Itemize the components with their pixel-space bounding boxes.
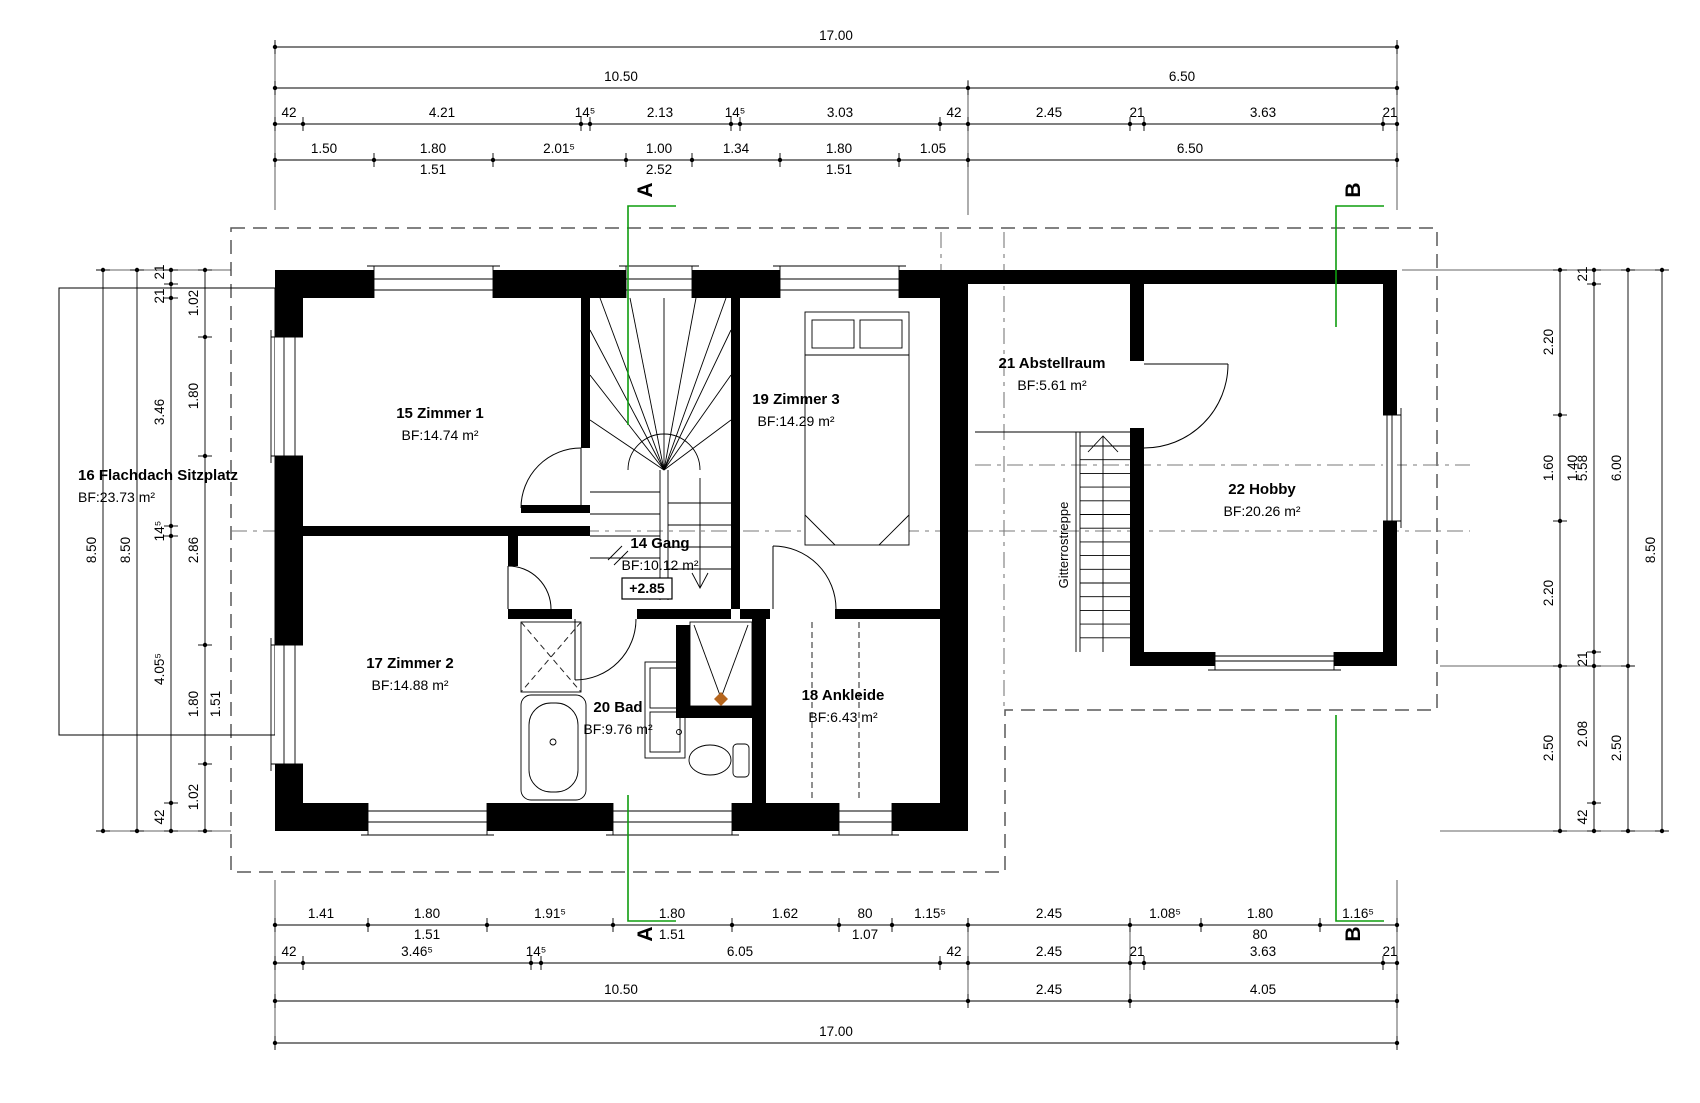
dim-label: 21 [1575, 266, 1590, 281]
dim-label: 2.45 [1036, 105, 1062, 120]
room-label: 18 AnkleideBF:6.43 m² [802, 687, 885, 725]
window [773, 266, 906, 298]
dim-label: 1.80 [420, 141, 446, 156]
dimension-row: 215.58212.0842 [1575, 266, 1601, 833]
dim-label: 8.50 [84, 537, 99, 563]
floor-plan-drawing: +2.85 Gitterrostreppe 17.0010.506.50424.… [0, 0, 1700, 1103]
dim-label: 2.50 [1609, 735, 1624, 761]
level-value: +2.85 [629, 580, 665, 596]
dim-label: 3.46 [152, 399, 167, 425]
dimension-row: 21213.4614⁵4.05⁵42 [152, 264, 178, 833]
dim-label: 3.63 [1250, 944, 1276, 959]
dim-label: 21 [152, 288, 167, 303]
dimension-row: 423.46⁵14⁵6.05422.45213.6321 [273, 944, 1399, 970]
window [832, 803, 899, 835]
dim-label: 42 [1575, 809, 1590, 824]
window [271, 330, 303, 463]
dim-label: 3.63 [1250, 105, 1276, 120]
dim-label: 2.52 [646, 162, 672, 177]
dim-label: 42 [281, 944, 296, 959]
room-name: 15 Zimmer 1 [396, 405, 484, 422]
room-name: 14 Gang [630, 535, 689, 552]
room-label: 21 AbstellraumBF:5.61 m² [999, 355, 1106, 393]
window [619, 266, 699, 298]
dim-label: 21 [1129, 944, 1144, 959]
dim-label: 42 [946, 944, 961, 959]
level-marker: +2.85 [622, 578, 672, 599]
section-marker-letter: B [1342, 926, 1365, 941]
dim-label: 1.62 [772, 906, 798, 921]
dimension-row: 1.501.802.01⁵1.001.341.801.056.501.512.5… [273, 141, 1399, 177]
dim-label: 80 [1252, 927, 1267, 942]
room-label: 16 Flachdach SitzplatzBF:23.73 m² [78, 467, 238, 505]
dim-label: 1.51 [659, 927, 685, 942]
toilet [689, 744, 749, 777]
section-marker-letter: B [1342, 182, 1365, 197]
dim-label: 4.05⁵ [152, 653, 167, 685]
window [361, 803, 494, 835]
room-name: 22 Hobby [1228, 481, 1296, 498]
room-area: BF:9.76 m² [583, 721, 653, 737]
dim-label: 6.50 [1177, 141, 1203, 156]
dim-label: 1.51 [208, 691, 223, 717]
window [1383, 408, 1401, 528]
door-zimmer3 [773, 546, 836, 609]
dim-label: 1.50 [311, 141, 337, 156]
dim-label: 21 [1575, 651, 1590, 666]
door-bad [575, 619, 636, 680]
door-zimmer2 [508, 566, 551, 609]
dim-label: 1.02 [186, 290, 201, 316]
room-area: BF:10.12 m² [621, 557, 698, 573]
room-label: 15 Zimmer 1BF:14.74 m² [396, 405, 484, 443]
dim-label: 10.50 [604, 982, 638, 997]
room-area: BF:6.43 m² [808, 709, 878, 725]
dimension-row: 1.021.802.861.801.511.02 [186, 268, 223, 833]
room-label: 17 Zimmer 2BF:14.88 m² [366, 655, 454, 693]
dim-label: 1.80 [186, 383, 201, 409]
dim-label: 2.50 [1541, 735, 1556, 761]
main-staircase [590, 298, 731, 600]
dimension-row: 10.502.454.05 [273, 982, 1399, 1008]
terrace-outline [59, 288, 275, 735]
dim-label: 3.03 [827, 105, 853, 120]
dimension-row: 17.00 [273, 28, 1399, 54]
dim-label: 1.80 [186, 691, 201, 717]
bathtub [521, 695, 586, 800]
dim-label: 1.16⁵ [1342, 906, 1374, 921]
room-name: 20 Bad [593, 699, 642, 716]
dim-label: 8.50 [118, 537, 133, 563]
dimension-row: 8.50 [1643, 268, 1669, 833]
shower [521, 622, 581, 692]
dimension-row: 6.002.50 [1609, 268, 1635, 833]
door-abstellraum [1144, 364, 1228, 448]
dim-label: 1.02 [186, 784, 201, 810]
dim-label: 5.58 [1575, 455, 1590, 481]
room-area: BF:20.26 m² [1223, 503, 1300, 519]
dim-label: 1.60 [1541, 455, 1556, 481]
dimension-row: 10.506.50 [273, 69, 1399, 95]
section-marker-letter: A [634, 926, 657, 941]
room-area: BF:5.61 m² [1017, 377, 1087, 393]
dim-label: 2.45 [1036, 982, 1062, 997]
grating-stair-label: Gitterrostreppe [1056, 502, 1071, 589]
dimension-row: 424.2114⁵2.1314⁵3.03422.45213.6321 [273, 105, 1399, 131]
window [606, 803, 739, 835]
dim-label: 1.51 [420, 162, 446, 177]
dimension-row: 17.00 [273, 1024, 1399, 1050]
dim-label: 42 [946, 105, 961, 120]
window [271, 638, 303, 771]
dim-label: 1.80 [826, 141, 852, 156]
dim-label: 2.20 [1541, 329, 1556, 355]
dim-label: 1.08⁵ [1149, 906, 1181, 921]
room-name: 17 Zimmer 2 [366, 655, 454, 672]
window [1208, 652, 1341, 670]
dim-label: 2.86 [186, 537, 201, 563]
floor-plan-page: +2.85 Gitterrostreppe 17.0010.506.50424.… [0, 0, 1700, 1103]
room-area: BF:23.73 m² [78, 489, 155, 505]
dim-label: 1.00 [646, 141, 672, 156]
dim-label: 21 [1129, 105, 1144, 120]
dim-label: 6.00 [1609, 455, 1624, 481]
dim-label: 4.05 [1250, 982, 1276, 997]
window [367, 266, 500, 298]
dimension-row: 1.411.801.91⁵1.801.62801.15⁵2.451.08⁵1.8… [273, 906, 1399, 942]
dim-label: 21 [1382, 944, 1397, 959]
dim-label: 1.51 [826, 162, 852, 177]
room-name: 16 Flachdach Sitzplatz [78, 467, 238, 484]
dim-label: 1.15⁵ [914, 906, 946, 921]
dim-label: 17.00 [819, 1024, 853, 1039]
dim-label: 1.51 [414, 927, 440, 942]
dim-label: 14⁵ [575, 105, 596, 120]
dimension-row: 8.50 [84, 268, 110, 833]
dim-label: 21 [152, 264, 167, 279]
dimension-row: 8.50 [118, 268, 144, 833]
dimension-row: 2.201.601.402.202.50 [1541, 268, 1580, 833]
dim-label: 1.05 [920, 141, 946, 156]
dim-label: 1.34 [723, 141, 750, 156]
dim-label: 1.07 [852, 927, 878, 942]
dim-label: 1.80 [1247, 906, 1273, 921]
room-name: 18 Ankleide [802, 687, 885, 704]
room-name: 21 Abstellraum [999, 355, 1106, 372]
dim-label: 2.13 [647, 105, 673, 120]
dim-label: 80 [857, 906, 872, 921]
room-label: 20 BadBF:9.76 m² [583, 699, 653, 737]
dim-label: 1.91⁵ [534, 906, 566, 921]
dim-label: 4.21 [429, 105, 455, 120]
dim-label: 6.50 [1169, 69, 1195, 84]
dim-label: 14⁵ [152, 521, 167, 542]
dim-label: 2.45 [1036, 906, 1062, 921]
dim-label: 42 [281, 105, 296, 120]
dim-label: 1.41 [308, 906, 334, 921]
room-name: 19 Zimmer 3 [752, 391, 840, 408]
dim-label: 1.80 [659, 906, 685, 921]
dim-label: 42 [152, 809, 167, 824]
room-area: BF:14.88 m² [371, 677, 448, 693]
dim-label: 14⁵ [725, 105, 746, 120]
dim-label: 2.01⁵ [543, 141, 575, 156]
dim-label: 8.50 [1643, 537, 1658, 563]
room-label: 22 HobbyBF:20.26 m² [1223, 481, 1300, 519]
dim-label: 14⁵ [526, 944, 547, 959]
room-area: BF:14.29 m² [757, 413, 834, 429]
room-area: BF:14.74 m² [401, 427, 478, 443]
dim-label: 2.08 [1575, 721, 1590, 747]
door-zimmer1 [521, 448, 581, 508]
dim-label: 2.45 [1036, 944, 1062, 959]
dim-label: 10.50 [604, 69, 638, 84]
dim-label: 17.00 [819, 28, 853, 43]
dim-label: 2.20 [1541, 580, 1556, 606]
section-marker-letter: A [634, 182, 657, 197]
dim-label: 1.80 [414, 906, 440, 921]
dim-label: 3.46⁵ [401, 944, 433, 959]
shower-tray [690, 622, 752, 706]
dim-label: 21 [1382, 105, 1397, 120]
dim-label: 6.05 [727, 944, 753, 959]
